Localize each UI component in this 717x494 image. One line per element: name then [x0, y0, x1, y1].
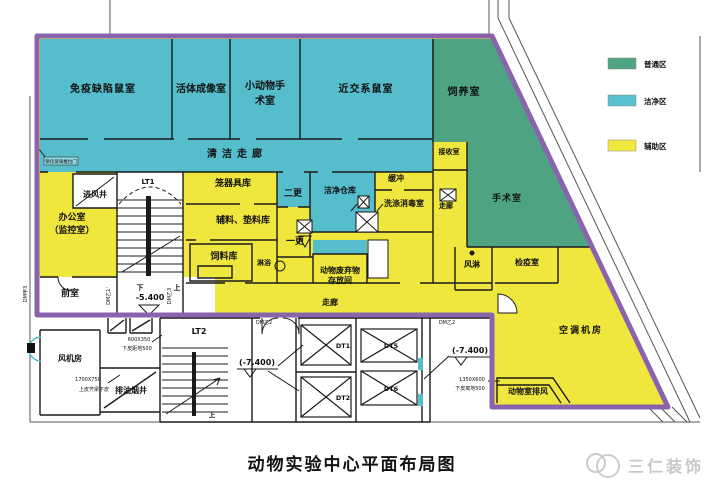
elevator-label-dt5: DT5 — [384, 342, 399, 350]
duct-size-1700: 1700X750 — [75, 377, 101, 383]
elevator-label-dt6: DT6 — [384, 385, 399, 393]
room-waste-2: 存放间 — [327, 275, 352, 285]
door-mark-dmy1: DM乙1' — [105, 287, 112, 305]
room-oil-shaft: 排油烟井 — [115, 385, 147, 395]
stair-lt2 — [162, 348, 228, 416]
room-buffer: 缓冲 — [388, 173, 404, 183]
door-mark-dmj3: DM甲3 — [23, 286, 29, 302]
elevation-7400-a: (-7.400) — [239, 358, 275, 367]
duct-note-1350: 下皮离地500 — [455, 385, 485, 392]
door-mark-dmy2-b: DM乙2 — [439, 319, 455, 326]
duct-size-1350: 1350X600 — [459, 377, 485, 383]
room-clean-corridor: 清洁走廊 — [207, 147, 267, 160]
page-title: 动物实验中心平面布局图 — [248, 454, 457, 475]
elevator-label-dt2: DT2 — [336, 394, 350, 402]
room-animal-exhaust: 动物室排风 — [508, 386, 548, 396]
elevation-7400-b: (-7.400) — [452, 346, 488, 355]
legend-swatch-general — [608, 58, 636, 69]
elevator-door-mark-1 — [418, 358, 423, 370]
room-office-2: （监控室） — [49, 224, 94, 236]
legend-swatch-clean — [608, 95, 636, 106]
legend-swatch-auxiliary — [608, 140, 636, 151]
room-materials: 辅料、垫料库 — [216, 214, 270, 226]
glass-door-note: 钢化玻璃推拉门 — [45, 158, 77, 165]
room-imaging: 活体成像室 — [176, 82, 226, 95]
stair-down-label: 下 — [137, 284, 144, 292]
room-immuno: 免疫缺陷鼠室 — [70, 82, 136, 95]
room-corridor-main: 走廊 — [321, 297, 338, 307]
elevator-label-dt1: DT1 — [336, 342, 351, 350]
room-air-inlet: 进风井 — [83, 189, 107, 199]
watermark: 三仁装饰 — [587, 454, 704, 477]
stair-label-lt1: LT1 — [142, 178, 155, 186]
stair-up-label-2: 上 — [209, 410, 216, 419]
room-inbred: 近交系鼠室 — [339, 82, 394, 95]
legend-label-general: 普通区 — [644, 59, 667, 69]
room-clean-warehouse: 洁净仓库 — [324, 185, 356, 195]
elevators — [301, 325, 423, 417]
room-fan: 风机房 — [58, 353, 82, 363]
room-feed-store: 饲料库 — [209, 250, 237, 262]
room-ac: 空调机房 — [559, 324, 603, 336]
legend-label-auxiliary: 辅助区 — [644, 141, 667, 151]
room-small-surgery-1: 小动物手 — [244, 79, 285, 92]
duct-note-600: 下皮距地500 — [122, 345, 152, 352]
floor-plan-drawing: 免疫缺陷鼠室 活体成像室 小动物手 术室 近交系鼠室 饲养室 清洁走廊 接收室 … — [0, 0, 717, 494]
watermark-text: 三仁装饰 — [628, 457, 704, 476]
room-anteroom: 前室 — [61, 287, 79, 299]
stair-up-label: 上 — [174, 283, 181, 292]
room-washing: 洗涤消毒室 — [384, 198, 424, 208]
room-cage-store: 笼器具库 — [214, 177, 251, 189]
duct-size-600: 600X350 — [128, 337, 151, 343]
stair-label-lt2: LT2 — [192, 327, 207, 336]
room-surgery: 手术室 — [492, 192, 522, 204]
room-waste-1: 动物废弃物 — [320, 265, 360, 275]
legend-label-clean: 洁净区 — [644, 96, 667, 106]
column-marker — [27, 343, 35, 353]
room-second-change: 二更 — [284, 188, 303, 199]
duct-note-1700: 上皮齐梁下皮 — [79, 386, 109, 393]
elevation-5400: -5.400 — [136, 293, 165, 302]
room-corridor-recv: 走廊 — [439, 201, 453, 210]
room-small-surgery-2: 术室 — [254, 94, 275, 107]
room-shower: 淋浴 — [257, 258, 272, 267]
equipment-box — [368, 240, 388, 278]
room-breeding: 饲养室 — [447, 85, 481, 98]
watermark-logo-inner — [597, 455, 619, 477]
elevator-door-mark-2 — [418, 394, 423, 406]
basement-walls — [40, 318, 492, 422]
room-first-change: 一更 — [286, 236, 305, 247]
door-mark-dmy3: DM乙3 — [166, 288, 173, 304]
room-office-1: 办公室 — [58, 211, 85, 223]
room-quarantine: 检疫室 — [515, 257, 539, 267]
zone-clean-small — [313, 240, 367, 254]
floor-plan-page: 免疫缺陷鼠室 活体成像室 小动物手 术室 近交系鼠室 饲养室 清洁走廊 接收室 … — [0, 0, 717, 494]
room-receiving: 接收室 — [439, 147, 460, 156]
legend: 普通区 洁净区 辅助区 — [608, 58, 667, 151]
door-mark-dmy2-a: DM乙2 — [256, 319, 272, 326]
room-air-shower: 风淋 — [464, 259, 480, 269]
